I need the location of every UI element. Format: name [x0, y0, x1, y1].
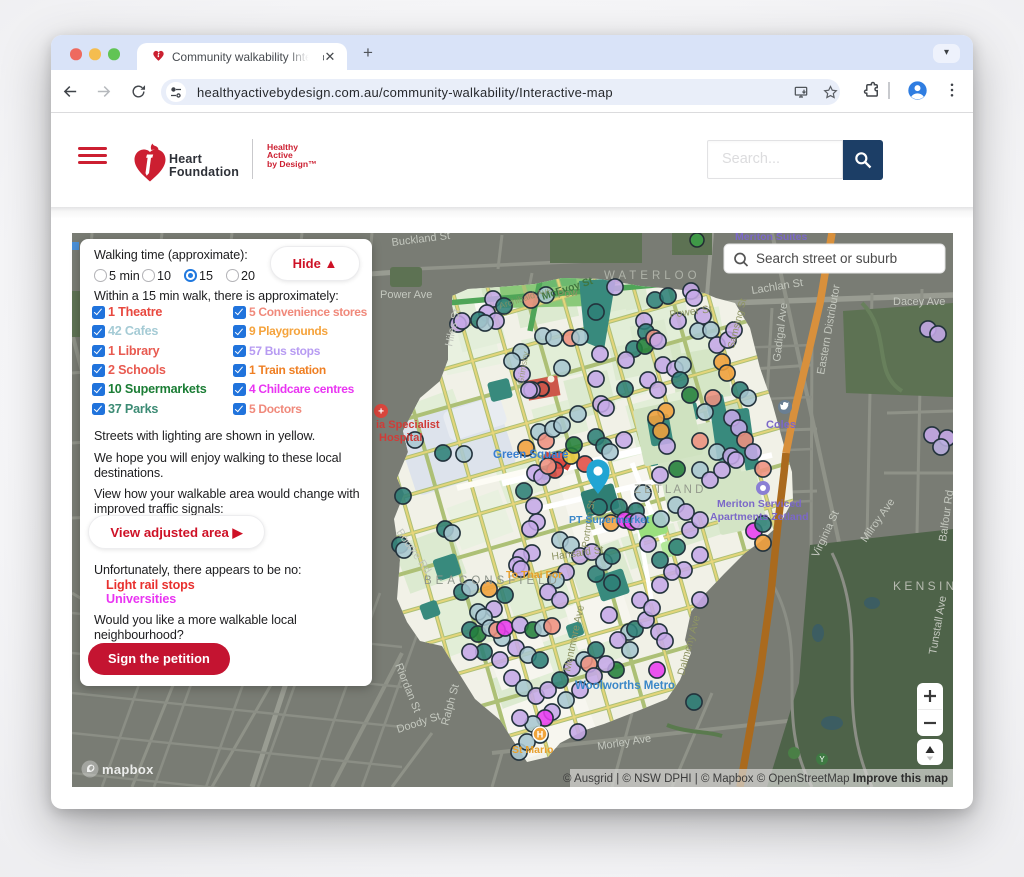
svg-text:Apartments Zetland: Apartments Zetland — [710, 511, 809, 523]
svg-text:Z E T L A N D: Z E T L A N D — [634, 484, 703, 496]
svg-text:Dacey Ave: Dacey Ave — [893, 296, 945, 308]
svg-text:WATERLOO: WATERLOO — [604, 270, 701, 282]
svg-text:K E N S I N G: K E N S I N G — [893, 579, 953, 593]
svg-text:Woolworths Metro: Woolworths Metro — [575, 680, 675, 692]
svg-text:ia Specialist: ia Specialist — [376, 419, 440, 431]
svg-text:Coles: Coles — [766, 419, 796, 431]
svg-text:Y: Y — [819, 755, 825, 764]
svg-text:Green Square: Green Square — [493, 449, 568, 461]
svg-text:PT Supermarket: PT Supermarket — [569, 514, 650, 526]
svg-text:Meriton Suites: Meriton Suites — [735, 233, 808, 243]
svg-text:Search street or suburb: Search street or suburb — [756, 251, 897, 266]
svg-text:Hospital: Hospital — [379, 432, 422, 444]
svg-text:+: + — [378, 407, 384, 418]
svg-text:Meriton Serviced: Meriton Serviced — [717, 498, 802, 510]
svg-text:mapbox: mapbox — [102, 762, 154, 777]
svg-text:© Ausgrid | © NSW DPHI | © Map: © Ausgrid | © NSW DPHI | © Mapbox © Open… — [563, 773, 948, 785]
svg-text:St Mario: St Mario — [512, 744, 553, 756]
svg-text:Power Ave: Power Ave — [380, 289, 432, 301]
svg-text:H: H — [537, 730, 544, 740]
svg-text:To Thai For: To Thai For — [506, 569, 562, 581]
